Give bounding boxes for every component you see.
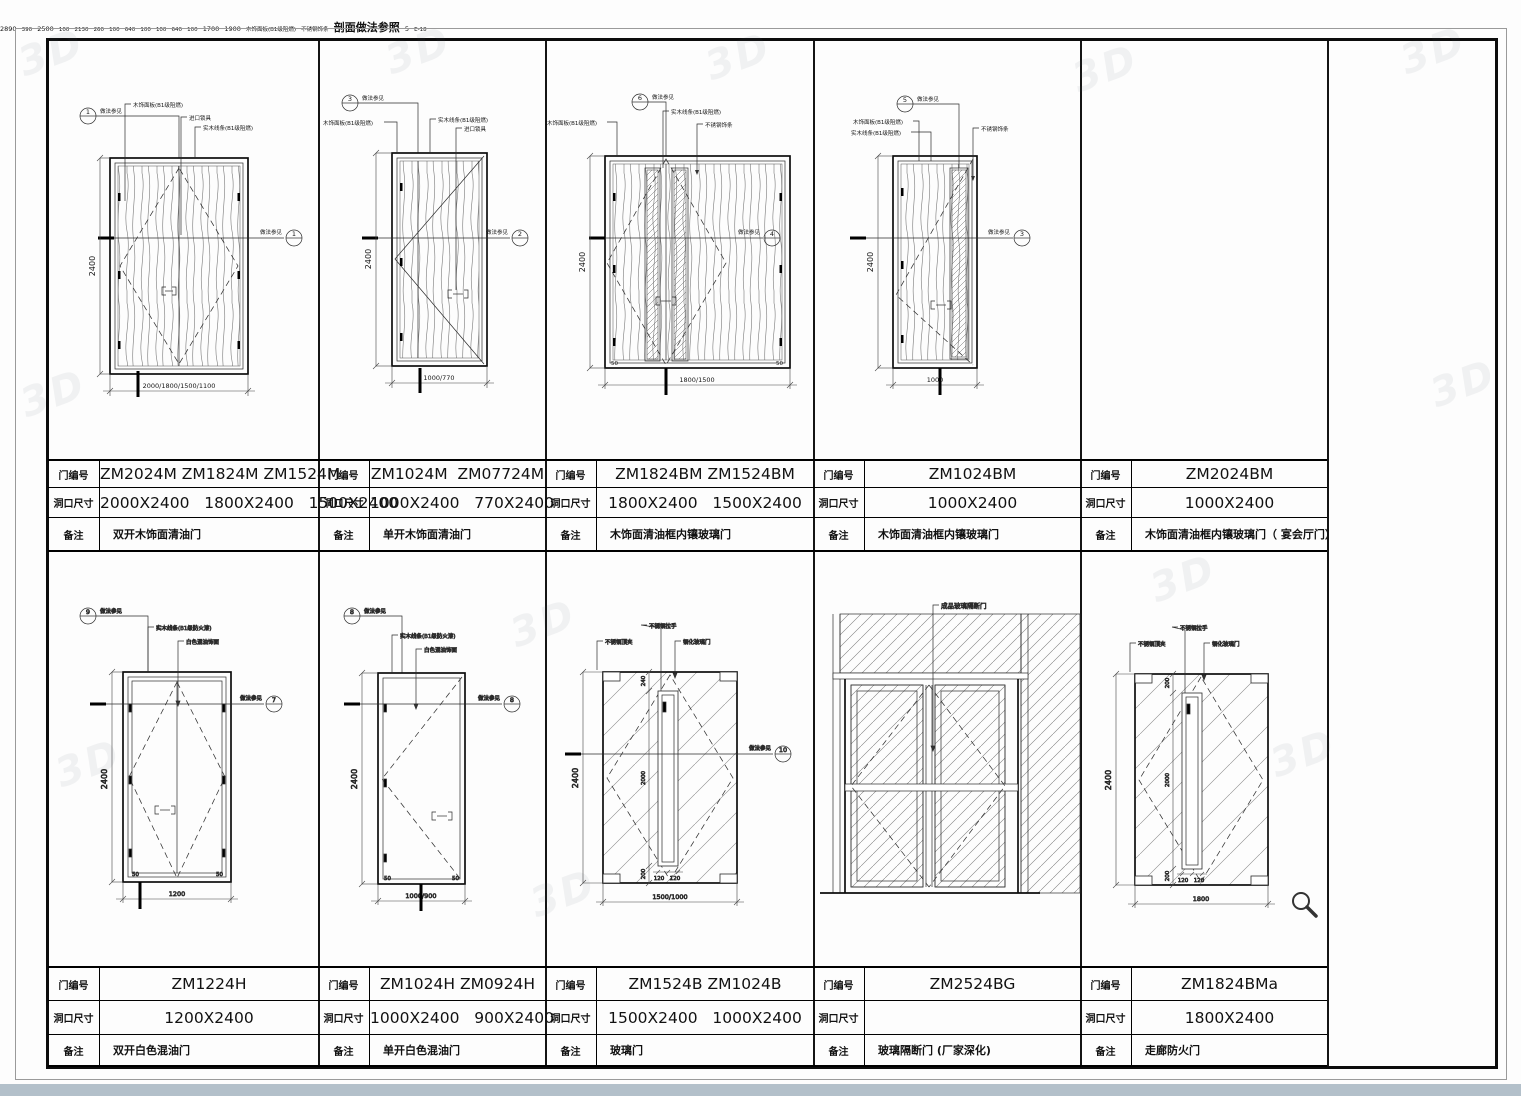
ref-bubble-mid: 3 做法参见 <box>988 228 1030 246</box>
table-row: 备注玻璃门 <box>545 1035 813 1067</box>
row-label: 备注 <box>1080 518 1132 550</box>
svg-text:不锈钢拉手: 不锈钢拉手 <box>1180 624 1208 632</box>
row-label: 洞口尺寸 <box>48 488 100 517</box>
glass-strip <box>952 170 966 357</box>
svg-text:200: 200 <box>641 868 647 879</box>
svg-text:50: 50 <box>216 872 223 878</box>
svg-text:2400: 2400 <box>1104 770 1113 790</box>
leader-label: 木饰面板(B1级阻燃) <box>853 118 919 161</box>
ref-bubble-mid: 2 做法参见 <box>486 228 528 246</box>
leader-label: 木饰面板(B1级阻燃) <box>323 119 397 153</box>
remark-value: 走廊防火门 <box>1132 1035 1327 1065</box>
table-row: 洞口尺寸1800X2400 <box>1080 1001 1327 1035</box>
row-label: 备注 <box>545 518 597 550</box>
transom-glass <box>840 614 1021 673</box>
hinge-marks <box>384 704 387 862</box>
dim-height <box>1113 671 1135 888</box>
row-label: 备注 <box>318 1035 370 1065</box>
door-swing-dashed <box>382 677 462 881</box>
svg-text:2400: 2400 <box>364 249 373 269</box>
svg-text:不锈钢顶夹: 不锈钢顶夹 <box>605 638 633 646</box>
svg-text:120: 120 <box>670 876 681 882</box>
opening-value: 1000X2400 <box>1132 488 1327 517</box>
leader-label: 实木线条(B1级阻燃) <box>663 108 721 168</box>
drawing-single-wood-glass-door: 5 做法参见 3 做法参见 木饰面板(B1级阻燃) 实木线条(B1级阻燃) 不锈… <box>813 43 1080 459</box>
drawing-glass-partition-door: 成品玻璃隔断门 <box>813 554 1080 966</box>
row-label: 洞口尺寸 <box>318 488 370 517</box>
ref-bubble-top: 5 做法参见 <box>897 95 959 168</box>
svg-text:做法参见: 做法参见 <box>100 607 123 615</box>
table-row: 洞口尺寸1000X2400 770X2400 <box>318 488 545 518</box>
door-no-value: ZM1024M ZM07724M <box>370 461 545 487</box>
ref-bubble-top: 1 做法参见 <box>80 107 179 158</box>
row-label: 备注 <box>48 518 100 550</box>
row-label: 门编号 <box>1080 461 1132 487</box>
table-row: 备注双开木饰面清油门 <box>48 518 318 552</box>
table-row: 备注木饰面清油框内镶玻璃门（ 宴会厅门） <box>1080 518 1327 552</box>
spec-table-zm2024bm: 门编号ZM2024BM 洞口尺寸1000X2400 备注木饰面清油框内镶玻璃门（… <box>1080 459 1327 552</box>
table-row: 洞口尺寸1800X2400 1500X2400 <box>545 488 813 518</box>
svg-text:8: 8 <box>510 696 514 704</box>
table-row: 洞口尺寸 <box>813 1001 1080 1035</box>
table-row: 门编号ZM1024M ZM07724M <box>318 461 545 488</box>
leader-label: 实木线条(B1级阻燃) <box>430 116 488 153</box>
dim-height <box>109 669 123 885</box>
ref-bubble-top: 6 做法参见 <box>632 93 675 156</box>
table-row: 洞口尺寸1200X2400 <box>48 1001 318 1035</box>
spec-table-zm1824bma: 门编号ZM1824BMa 洞口尺寸1800X2400 备注走廊防火门 <box>1080 966 1327 1067</box>
table-row: 备注木饰面清油框内镶玻璃门 <box>813 518 1080 552</box>
svg-text:1500/1000: 1500/1000 <box>652 893 687 901</box>
door-leaf-woodgrain <box>400 161 479 358</box>
svg-text:实木线条(B1级防火漆): 实木线条(B1级防火漆) <box>156 624 212 632</box>
svg-text:2000: 2000 <box>641 771 647 785</box>
svg-text:2400: 2400 <box>88 256 97 276</box>
dim-height <box>587 153 605 371</box>
svg-text:240: 240 <box>641 675 647 686</box>
ref-bubble-mid: 1 做法参见 <box>260 228 302 246</box>
leader-label: 白色混油饰面 <box>414 646 458 709</box>
row-label: 门编号 <box>318 461 370 487</box>
svg-text:成品玻璃隔断门: 成品玻璃隔断门 <box>941 601 987 610</box>
svg-text:2000/1800/1500/1100: 2000/1800/1500/1100 <box>143 382 216 390</box>
table-row: 门编号ZM2024BM <box>1080 461 1327 488</box>
leader-label: 实木线条(B1级防火漆) <box>148 624 212 672</box>
row-label: 备注 <box>813 1035 865 1065</box>
table-row: 洞口尺寸1000X2400 <box>1080 488 1327 518</box>
table-row: 洞口尺寸1500X2400 1000X2400 <box>545 1001 813 1035</box>
opening-value: 1000X2400 770X2400 <box>370 488 554 517</box>
row-label: 门编号 <box>1080 968 1132 1000</box>
pull-handle <box>658 691 678 866</box>
opening-value: 1800X2400 <box>1132 1001 1327 1034</box>
svg-text:做法参见: 做法参见 <box>240 694 263 702</box>
svg-text:3: 3 <box>1020 230 1024 238</box>
row-label: 洞口尺寸 <box>545 1001 597 1034</box>
spec-table-zm1024m: 门编号ZM1024M ZM07724M 洞口尺寸1000X2400 770X24… <box>318 459 545 552</box>
drawing-double-wood-glass-door: 6 做法参见 50 50 4 做法参见 木饰面板(B1级阻燃) 实木线条(B1级… <box>545 43 813 459</box>
svg-text:钢化玻璃门: 钢化玻璃门 <box>1212 640 1240 648</box>
svg-text:200: 200 <box>1165 870 1171 881</box>
leader-label: 实木线条(B1级阻燃) <box>195 124 253 158</box>
table-row: 备注走廊防火门 <box>1080 1035 1327 1067</box>
svg-text:2400: 2400 <box>866 252 875 272</box>
spec-table-zm1024bm: 门编号ZM1024BM 洞口尺寸1000X2400 备注木饰面清油框内镶玻璃门 <box>813 459 1080 552</box>
svg-text:不锈钢饰条: 不锈钢饰条 <box>705 121 733 129</box>
row-label: 洞口尺寸 <box>318 1001 370 1034</box>
svg-text:不锈钢拉手: 不锈钢拉手 <box>649 622 677 630</box>
table-row: 备注玻璃隔断门 (厂家深化) <box>813 1035 1080 1067</box>
table-row: 门编号ZM2024M ZM1824M ZM1524M <box>48 461 318 488</box>
column-divider-5 <box>1327 41 1329 1066</box>
ref-bubble-top: 8 做法参见 <box>344 607 402 673</box>
svg-text:做法参见: 做法参见 <box>749 744 772 752</box>
row-label: 门编号 <box>48 461 100 487</box>
row-label: 洞口尺寸 <box>1080 488 1132 517</box>
door-leaf-woodgrain <box>613 164 782 360</box>
table-row: 门编号ZM1024H ZM0924H <box>318 968 545 1001</box>
row-label: 门编号 <box>545 968 597 1000</box>
svg-text:木饰面板(B1级阻燃): 木饰面板(B1级阻燃) <box>133 101 183 109</box>
row-label: 洞口尺寸 <box>545 488 597 517</box>
svg-text:10: 10 <box>779 746 787 754</box>
svg-text:实木线条(B1级阻燃): 实木线条(B1级阻燃) <box>851 129 901 137</box>
svg-text:做法参见: 做法参见 <box>486 228 509 236</box>
svg-text:进口锁具: 进口锁具 <box>189 114 212 122</box>
ref-bubble-top: 9 做法参见 <box>80 607 148 672</box>
table-row: 洞口尺寸2000X2400 1800X2400 1500X2400 <box>48 488 318 518</box>
dim-height <box>97 155 110 377</box>
row-label: 备注 <box>48 1035 100 1065</box>
svg-text:7: 7 <box>272 696 276 704</box>
svg-text:50: 50 <box>611 361 618 367</box>
opening-value: 1500X2400 1000X2400 <box>597 1001 813 1034</box>
svg-text:白色混油饰面: 白色混油饰面 <box>424 646 458 654</box>
svg-text:做法参见: 做法参见 <box>988 228 1011 236</box>
opening-value: 1000X2400 900X2400 <box>370 1001 554 1034</box>
leader-label: 不锈钢顶夹 <box>1130 640 1166 672</box>
row-label: 备注 <box>813 518 865 550</box>
top-rail <box>833 673 1028 679</box>
svg-text:做法参见: 做法参见 <box>738 228 761 236</box>
svg-text:实木线条(B1级防火漆): 实木线条(B1级防火漆) <box>400 632 456 640</box>
remark-value: 双开木饰面清油门 <box>100 518 318 550</box>
svg-text:木饰面板(B1级阻燃): 木饰面板(B1级阻燃) <box>853 118 903 126</box>
lock-symbol <box>432 812 452 820</box>
svg-text:1000/770: 1000/770 <box>423 374 454 382</box>
svg-text:白色混油饰面: 白色混油饰面 <box>186 638 220 646</box>
door-no-value: ZM1224H <box>100 968 318 1000</box>
remark-value: 单开木饰面清油门 <box>370 518 545 550</box>
door-no-value: ZM2024M ZM1824M ZM1524M <box>100 461 340 487</box>
opening-value <box>865 1001 1080 1034</box>
row-label: 门编号 <box>48 968 100 1000</box>
svg-text:120: 120 <box>1178 878 1189 884</box>
svg-text:做法参见: 做法参见 <box>652 93 675 101</box>
svg-text:50: 50 <box>384 876 391 882</box>
svg-text:木饰面板(B1级阻燃): 木饰面板(B1级阻燃) <box>547 119 597 127</box>
pull-handle <box>1182 693 1202 869</box>
remark-value: 木饰面清油框内镶玻璃门（ 宴会厅门） <box>1132 518 1336 550</box>
svg-text:200: 200 <box>1165 677 1171 688</box>
ref-bubble-mid: 10 做法参见 <box>749 744 791 762</box>
spec-table-zm1824bm: 门编号ZM1824BM ZM1524BM 洞口尺寸1800X2400 1500X… <box>545 459 813 552</box>
drawing-glass-door: 240 2000 200 120 120 10 做法参见 不锈钢顶夹 不锈钢拉手… <box>545 554 813 966</box>
svg-text:做法参见: 做法参见 <box>100 107 123 115</box>
ref-bubble-mid: 8 做法参见 <box>478 694 520 712</box>
table-row: 门编号ZM1224H <box>48 968 318 1001</box>
svg-text:5: 5 <box>903 96 907 104</box>
drawing-single-white-door: 8 做法参见 50 50 8 做法参见 实木线条(B1级防火漆) 白色混油饰面 … <box>318 554 545 966</box>
svg-text:1800: 1800 <box>1193 895 1210 903</box>
spec-table-zm1524b: 门编号ZM1524B ZM1024B 洞口尺寸1500X2400 1000X24… <box>545 966 813 1067</box>
window-bottom-bar <box>0 1084 1521 1096</box>
row-label: 洞口尺寸 <box>813 1001 865 1034</box>
table-row: 备注木饰面清油框内镶玻璃门 <box>545 518 813 552</box>
remark-value: 玻璃门 <box>597 1035 813 1065</box>
glass-strip <box>647 170 658 359</box>
svg-text:2: 2 <box>518 230 522 238</box>
spec-table-zm2024m: 门编号ZM2024M ZM1824M ZM1524M 洞口尺寸2000X2400… <box>48 459 318 552</box>
table-row: 洞口尺寸1000X2400 900X2400 <box>318 1001 545 1035</box>
magnifier-icon <box>1288 888 1320 920</box>
side-glass <box>1021 614 1080 893</box>
svg-text:做法参见: 做法参见 <box>364 607 387 615</box>
spec-table-zm2524bg: 门编号ZM2524BG 洞口尺寸 备注玻璃隔断门 (厂家深化) <box>813 966 1080 1067</box>
drawing-double-wood-door: 1 做法参见 1 做法参见 木饰面板(B1级阻燃) 进口锁具 实木线条(B1级阻… <box>48 43 318 459</box>
row-label: 备注 <box>1080 1035 1132 1065</box>
opening-value: 1000X2400 <box>865 488 1080 517</box>
mid-rail <box>845 784 1018 791</box>
svg-text:2400: 2400 <box>100 769 109 789</box>
leader-label: 木饰面板(B1级阻燃) <box>547 119 617 156</box>
svg-text:2400: 2400 <box>571 768 580 788</box>
svg-text:1: 1 <box>292 230 296 238</box>
door-no-value: ZM1524B ZM1024B <box>597 968 813 1000</box>
row-label: 洞口尺寸 <box>813 488 865 517</box>
remark-value: 木饰面清油框内镶玻璃门 <box>597 518 813 550</box>
svg-text:2400: 2400 <box>350 769 359 789</box>
door-no-value: ZM1024BM <box>865 461 1080 487</box>
svg-text:做法参见: 做法参见 <box>478 694 501 702</box>
svg-text:50: 50 <box>776 361 783 367</box>
svg-text:做法参见: 做法参见 <box>917 95 940 103</box>
svg-text:50: 50 <box>132 872 139 878</box>
svg-text:实木线条(B1级阻燃): 实木线条(B1级阻燃) <box>671 108 721 116</box>
svg-text:木饰面板(B1级阻燃): 木饰面板(B1级阻燃) <box>323 119 373 127</box>
drawing-single-wood-door: 3 做法参见 2 做法参见 木饰面板(B1级阻燃) 实木线条(B1级阻燃) 进口… <box>318 43 545 459</box>
svg-text:2400: 2400 <box>578 252 587 272</box>
glass-strip <box>674 170 686 359</box>
svg-text:实木线条(B1级阻燃): 实木线条(B1级阻燃) <box>438 116 488 124</box>
svg-text:1200: 1200 <box>169 890 186 898</box>
remark-value: 双开白色混油门 <box>100 1035 318 1065</box>
drawing-double-white-door: 9 做法参见 50 50 7 做法参见 实木线条(B1级防火漆) 白色混油饰面 … <box>48 554 318 966</box>
table-row: 门编号ZM1824BMa <box>1080 968 1327 1001</box>
dim-height <box>359 670 378 887</box>
table-row: 备注单开木饰面清油门 <box>318 518 545 552</box>
spec-table-zm1024h: 门编号ZM1024H ZM0924H 洞口尺寸1000X2400 900X240… <box>318 966 545 1067</box>
svg-text:1: 1 <box>86 108 90 116</box>
svg-text:120: 120 <box>1194 878 1205 884</box>
door-no-value: ZM1824BMa <box>1132 968 1327 1000</box>
drawing-banquet-door-elevation <box>1080 43 1327 459</box>
leader-label: 不锈钢顶夹 <box>597 638 633 670</box>
svg-text:8: 8 <box>350 608 354 616</box>
opening-value: 1200X2400 <box>100 1001 318 1034</box>
row-label: 洞口尺寸 <box>1080 1001 1132 1034</box>
svg-text:3: 3 <box>348 95 352 103</box>
remark-value: 单开白色混油门 <box>370 1035 545 1065</box>
opening-value: 1800X2400 1500X2400 <box>597 488 813 517</box>
table-row: 洞口尺寸1000X2400 <box>813 488 1080 518</box>
dim-height <box>580 669 603 886</box>
svg-text:9: 9 <box>86 608 90 616</box>
svg-text:4: 4 <box>770 230 774 238</box>
svg-text:120: 120 <box>654 876 665 882</box>
dim-height <box>373 150 392 369</box>
svg-text:进口锁具: 进口锁具 <box>464 125 487 133</box>
svg-text:钢化玻璃门: 钢化玻璃门 <box>683 638 711 646</box>
row-label: 备注 <box>318 518 370 550</box>
row-label: 备注 <box>545 1035 597 1065</box>
door-no-value: ZM2024BM <box>1132 461 1327 487</box>
row-label: 洞口尺寸 <box>48 1001 100 1034</box>
table-row: 门编号ZM2524BG <box>813 968 1080 1001</box>
remark-value: 木饰面清油框内镶玻璃门 <box>865 518 1080 550</box>
table-row: 门编号ZM1824BM ZM1524BM <box>545 461 813 488</box>
door-no-value: ZM2524BG <box>865 968 1080 1000</box>
table-row: 门编号ZM1524B ZM1024B <box>545 968 813 1001</box>
svg-text:50: 50 <box>452 876 459 882</box>
ref-bubble-mid: 7 做法参见 <box>240 694 282 712</box>
remark-value: 玻璃隔断门 (厂家深化) <box>865 1035 1080 1065</box>
row-label: 门编号 <box>813 461 865 487</box>
table-row: 备注双开白色混油门 <box>48 1035 318 1067</box>
svg-text:实木线条(B1级阻燃): 实木线条(B1级阻燃) <box>203 124 253 132</box>
row-label: 门编号 <box>813 968 865 1000</box>
spec-table-zm1224h: 门编号ZM1224H 洞口尺寸1200X2400 备注双开白色混油门 <box>48 966 318 1067</box>
svg-text:做法参见: 做法参见 <box>260 228 283 236</box>
svg-text:1800/1500: 1800/1500 <box>679 376 714 384</box>
lock-symbol <box>155 806 175 814</box>
door-no-value: ZM1024H ZM0924H <box>370 968 545 1000</box>
svg-text:不锈钢顶夹: 不锈钢顶夹 <box>1138 640 1166 648</box>
svg-text:不锈钢饰条: 不锈钢饰条 <box>981 125 1009 133</box>
table-row: 备注单开白色混油门 <box>318 1035 545 1067</box>
svg-text:2000: 2000 <box>1165 773 1171 787</box>
table-row: 门编号ZM1024BM <box>813 461 1080 488</box>
row-label: 门编号 <box>318 968 370 1000</box>
svg-text:6: 6 <box>638 94 642 102</box>
row-label: 门编号 <box>545 461 597 487</box>
dim-height <box>875 153 893 371</box>
svg-text:做法参见: 做法参见 <box>362 94 385 102</box>
door-no-value: ZM1824BM ZM1524BM <box>597 461 813 487</box>
